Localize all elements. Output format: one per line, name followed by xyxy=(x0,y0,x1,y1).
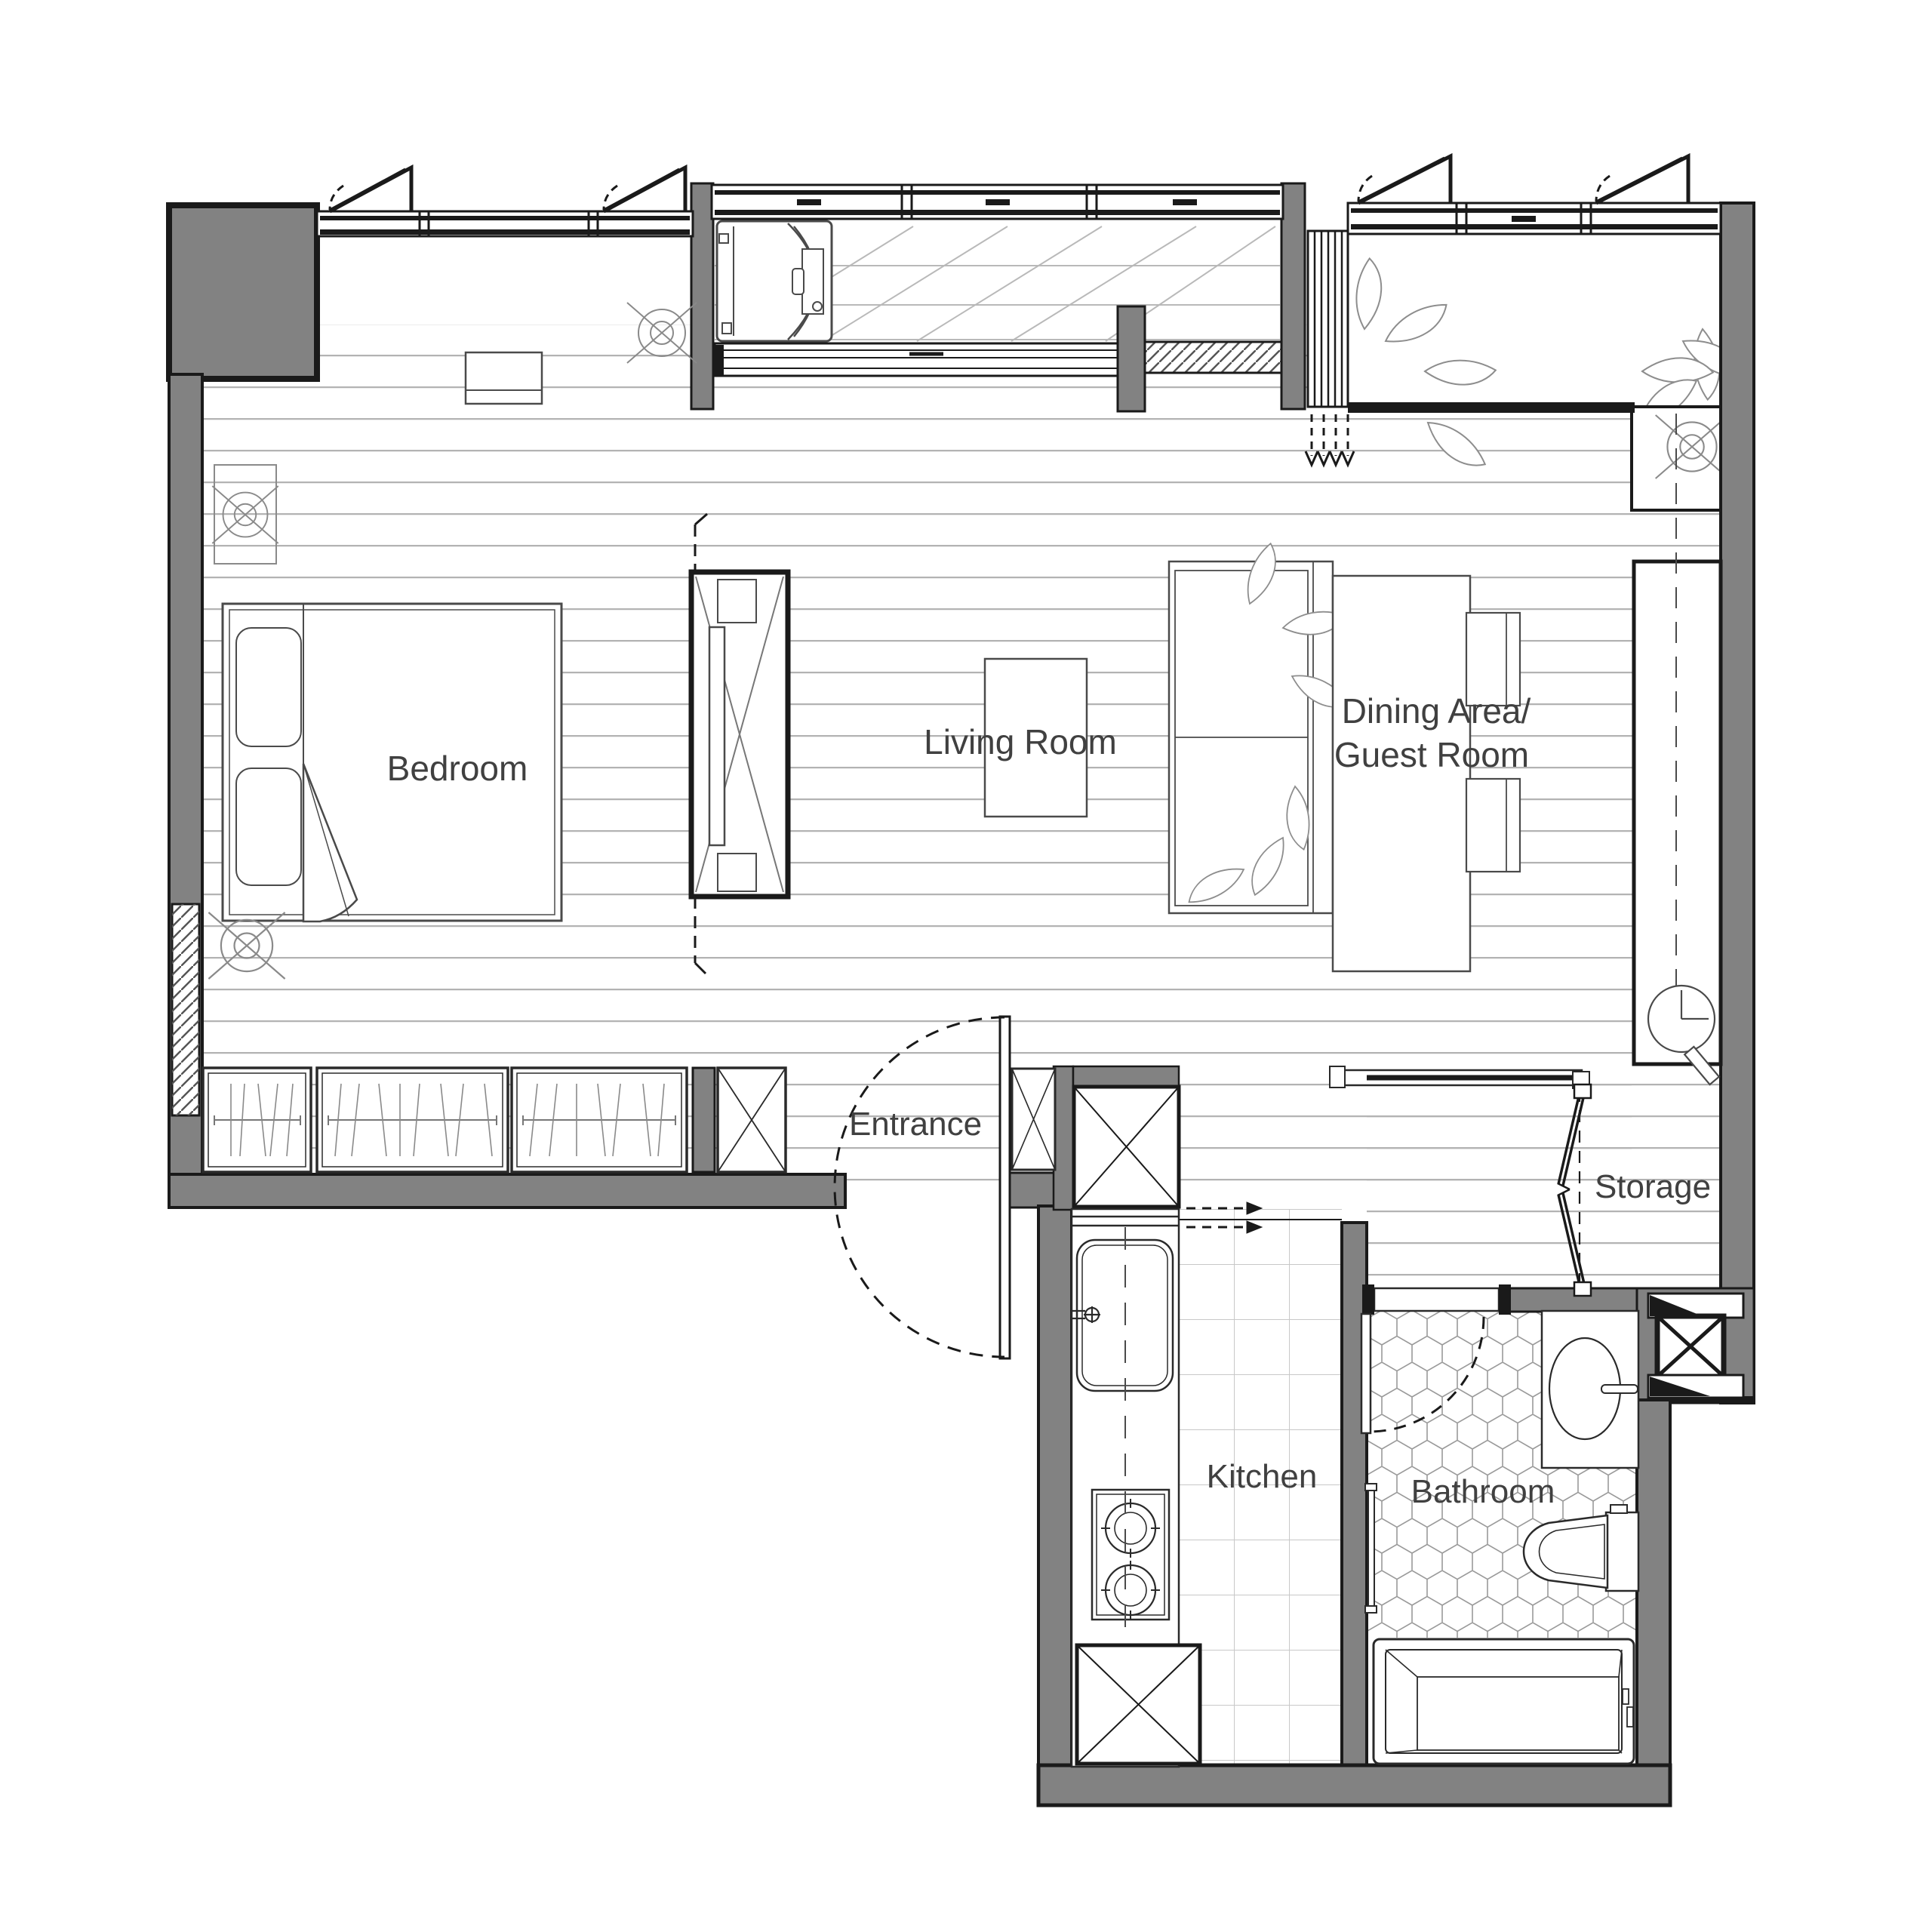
window-band-bedroom xyxy=(317,168,693,236)
band-above-kitchen-cabinet xyxy=(1073,1066,1179,1087)
label-entrance: Entrance xyxy=(849,1106,982,1143)
balcony-post-left xyxy=(691,183,713,409)
door-fin xyxy=(1000,1017,1010,1358)
label-dining-1: Dining Area/ xyxy=(1342,691,1531,731)
tv-cabinet xyxy=(691,572,788,897)
casement-window-icon xyxy=(1358,156,1688,203)
stove xyxy=(1092,1490,1169,1620)
floor-plan-canvas: Bedroom Living Room Dining Area/ Guest R… xyxy=(0,0,1932,1932)
louver-screen xyxy=(1308,231,1348,407)
casement-window-icon xyxy=(330,168,685,211)
sliding-track xyxy=(1330,1066,1589,1088)
window-band-garden xyxy=(1348,156,1721,234)
entry-cabinet-x xyxy=(1074,1087,1179,1207)
label-bathroom: Bathroom xyxy=(1411,1473,1555,1510)
landing-step xyxy=(1632,407,1728,510)
label-kitchen: Kitchen xyxy=(1207,1458,1318,1495)
planter-hatch xyxy=(1145,342,1283,373)
window-band-laundry xyxy=(712,185,1283,219)
floor-plan-drawing: Bedroom Living Room Dining Area/ Guest R… xyxy=(0,0,1932,1932)
storage-bottom-wall xyxy=(1501,1288,1638,1312)
wardrobe-cabinet-x xyxy=(718,1068,786,1172)
refrigerator-x xyxy=(1077,1645,1200,1764)
curtain-box xyxy=(466,352,542,404)
label-bedroom: Bedroom xyxy=(387,749,528,788)
bottom-wall xyxy=(1038,1765,1670,1805)
faucet-icon xyxy=(1601,1385,1638,1393)
pillow xyxy=(236,768,301,885)
bathroom-right-wall xyxy=(1637,1400,1670,1804)
door-leaf xyxy=(1361,1314,1371,1433)
tv xyxy=(709,627,724,845)
label-storage: Storage xyxy=(1595,1168,1711,1205)
washing-machine xyxy=(717,221,832,341)
wardrobe xyxy=(203,1068,687,1172)
vanity xyxy=(1542,1311,1638,1468)
wardrobe-divider xyxy=(693,1068,715,1172)
kitchen-left-wall xyxy=(1038,1206,1072,1802)
right-wall xyxy=(1721,203,1754,1403)
balcony-inner-rail xyxy=(715,343,1119,376)
wall-above-shoe-cabinet xyxy=(1054,1066,1073,1210)
corner-wall-line xyxy=(1348,402,1635,413)
balcony-post-mid xyxy=(1281,183,1305,409)
pillow xyxy=(236,628,301,746)
sofa xyxy=(1169,543,1349,913)
label-living: Living Room xyxy=(924,722,1117,761)
structural-block xyxy=(169,205,317,379)
shoe-cabinet-x xyxy=(1012,1069,1055,1170)
bottom-left-wall xyxy=(169,1174,845,1207)
balcony-mini-post xyxy=(1118,306,1145,411)
bathtub xyxy=(1374,1639,1634,1764)
label-dining-2: Guest Room xyxy=(1334,735,1529,774)
